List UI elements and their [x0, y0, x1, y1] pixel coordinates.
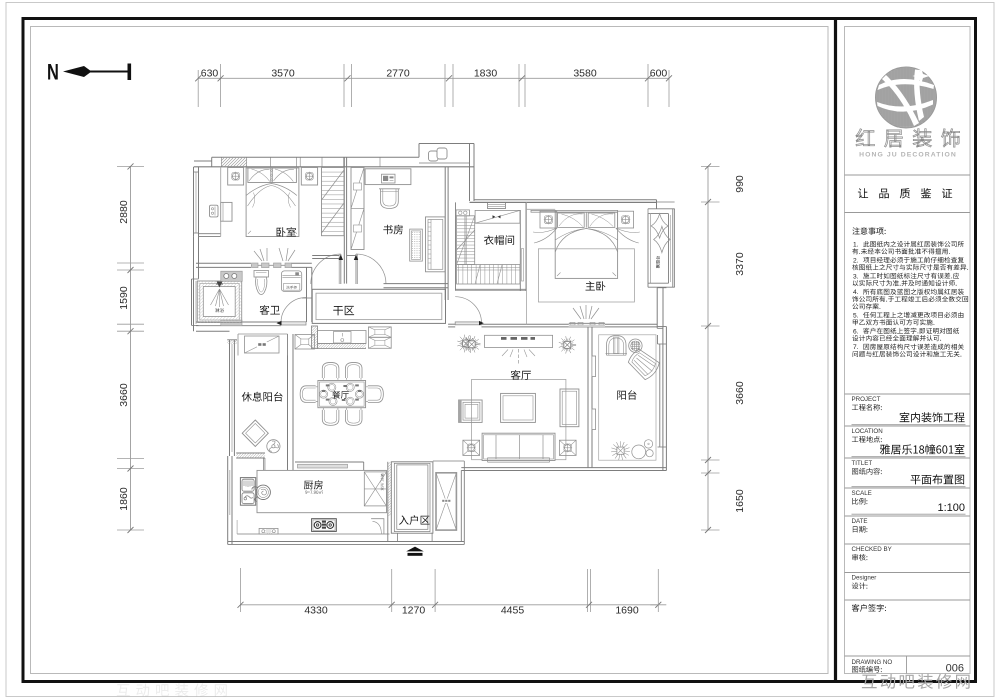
svg-text:006: 006	[946, 663, 964, 675]
svg-text:4.: 4.	[853, 289, 859, 296]
svg-text:7.: 7.	[853, 344, 859, 351]
svg-text:CHECKED BY: CHECKED BY	[852, 546, 892, 553]
svg-text:SCALE: SCALE	[852, 490, 872, 497]
svg-text:DATE: DATE	[852, 518, 868, 525]
svg-text:3580: 3580	[573, 67, 597, 79]
svg-text:1830: 1830	[474, 67, 498, 79]
svg-text:1690: 1690	[615, 605, 639, 617]
svg-text:5.: 5.	[853, 312, 859, 319]
svg-text:3660: 3660	[734, 381, 746, 405]
svg-text:2880: 2880	[118, 200, 130, 224]
svg-text:3660: 3660	[118, 383, 130, 407]
svg-text:600: 600	[650, 67, 668, 79]
svg-text:3570: 3570	[271, 67, 295, 79]
svg-text:2.: 2.	[853, 257, 859, 264]
svg-text:4455: 4455	[501, 605, 525, 617]
svg-text:1860: 1860	[118, 487, 130, 511]
svg-text:N: N	[47, 60, 59, 85]
svg-text:Designer: Designer	[852, 575, 877, 582]
svg-text:1.: 1.	[853, 242, 859, 249]
svg-text:6.: 6.	[853, 328, 859, 335]
svg-text:3.: 3.	[853, 273, 859, 280]
svg-text:2770: 2770	[386, 67, 410, 79]
svg-text:1590: 1590	[118, 286, 130, 310]
svg-text:HONG JU DECORATION: HONG JU DECORATION	[859, 152, 957, 159]
svg-text:990: 990	[734, 175, 746, 193]
svg-text:LOCATION: LOCATION	[852, 428, 883, 435]
svg-text:3370: 3370	[734, 252, 746, 276]
svg-text:1270: 1270	[402, 605, 426, 617]
svg-text:DRAWING NO: DRAWING NO	[852, 659, 893, 666]
svg-text:4330: 4330	[304, 605, 328, 617]
svg-text:TITLET: TITLET	[852, 460, 873, 467]
svg-text:630: 630	[201, 67, 219, 79]
svg-text:1650: 1650	[734, 489, 746, 513]
svg-text:1:100: 1:100	[937, 502, 965, 514]
svg-text:PROJECT: PROJECT	[852, 396, 881, 403]
